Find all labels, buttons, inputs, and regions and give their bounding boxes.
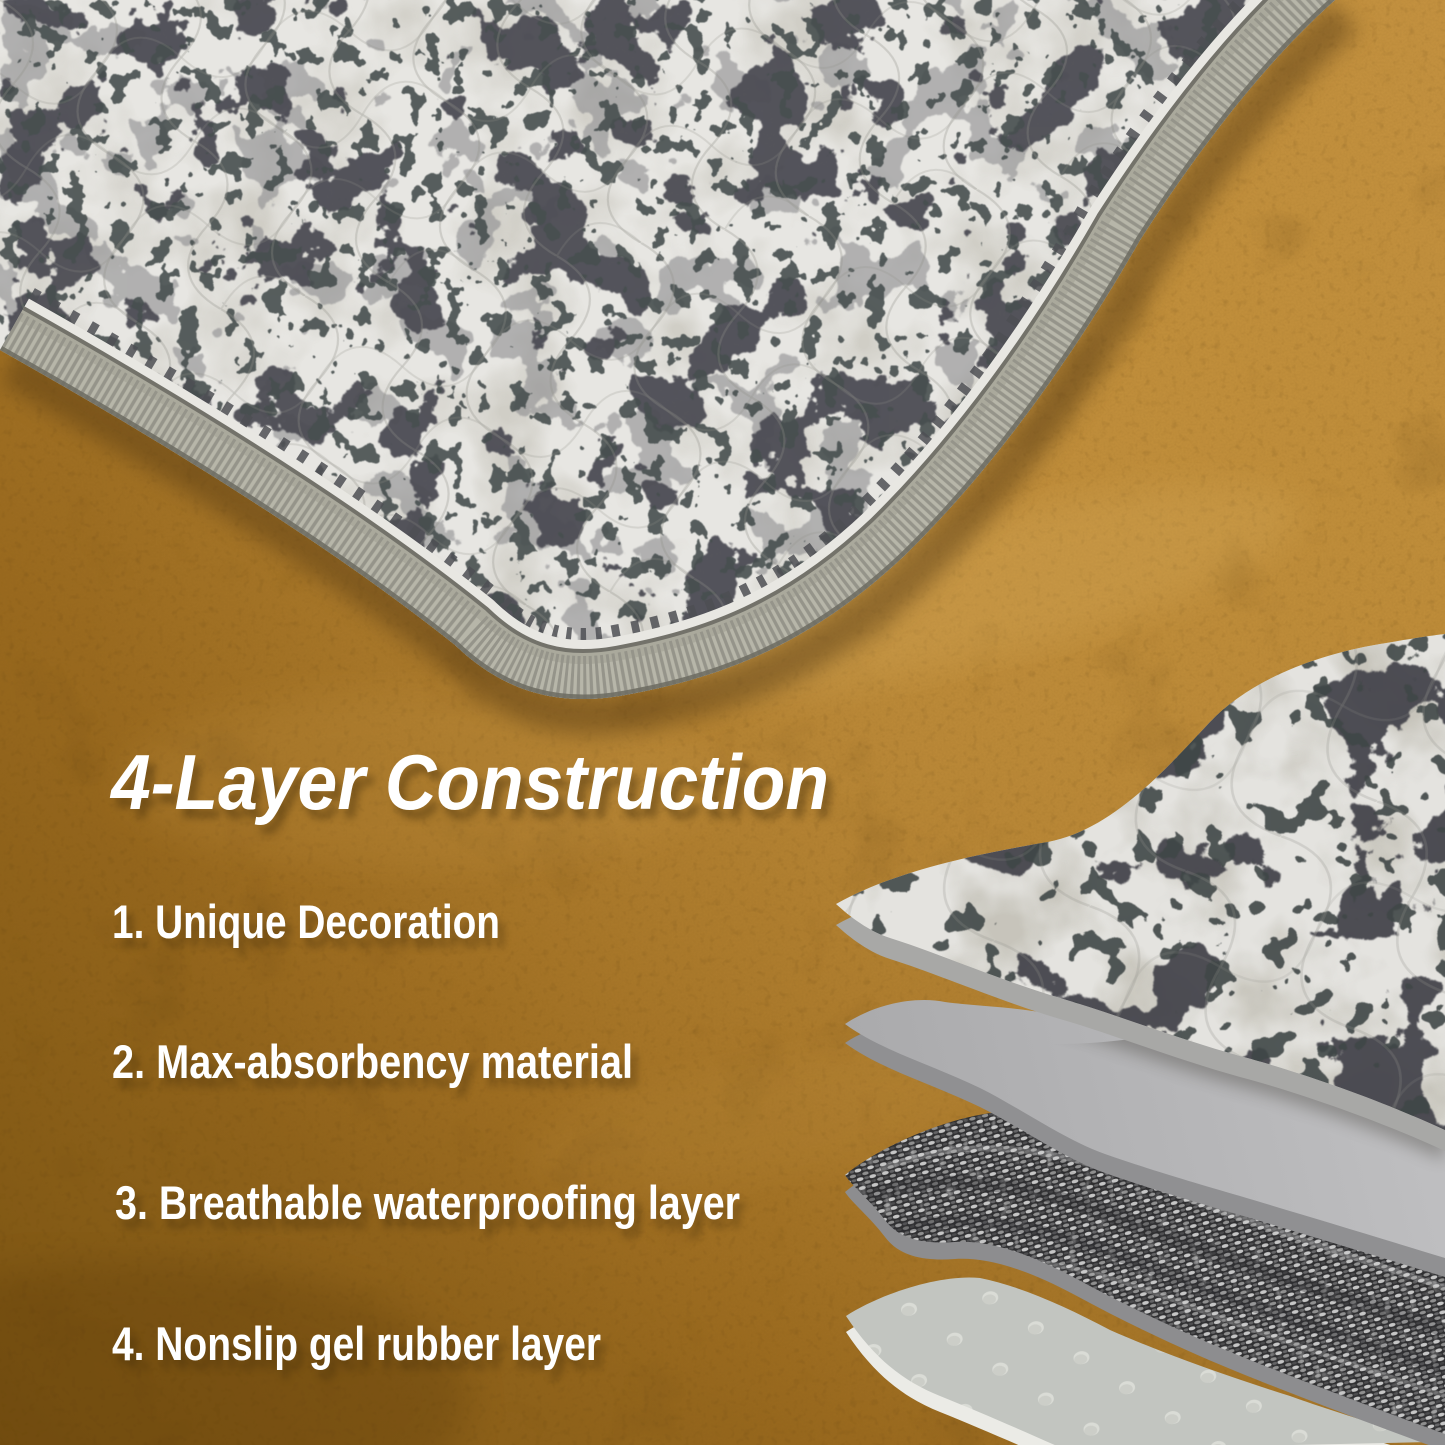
svg-text:3. Breathable waterproofing la: 3. Breathable waterproofing layer <box>115 1176 740 1229</box>
svg-text:1. Unique Decoration: 1. Unique Decoration <box>112 895 500 948</box>
svg-text:4. Nonslip gel rubber layer: 4. Nonslip gel rubber layer <box>112 1317 601 1370</box>
svg-text:2. Max-absorbency material: 2. Max-absorbency material <box>112 1035 633 1088</box>
svg-text:4-Layer Construction: 4-Layer Construction <box>109 738 829 826</box>
